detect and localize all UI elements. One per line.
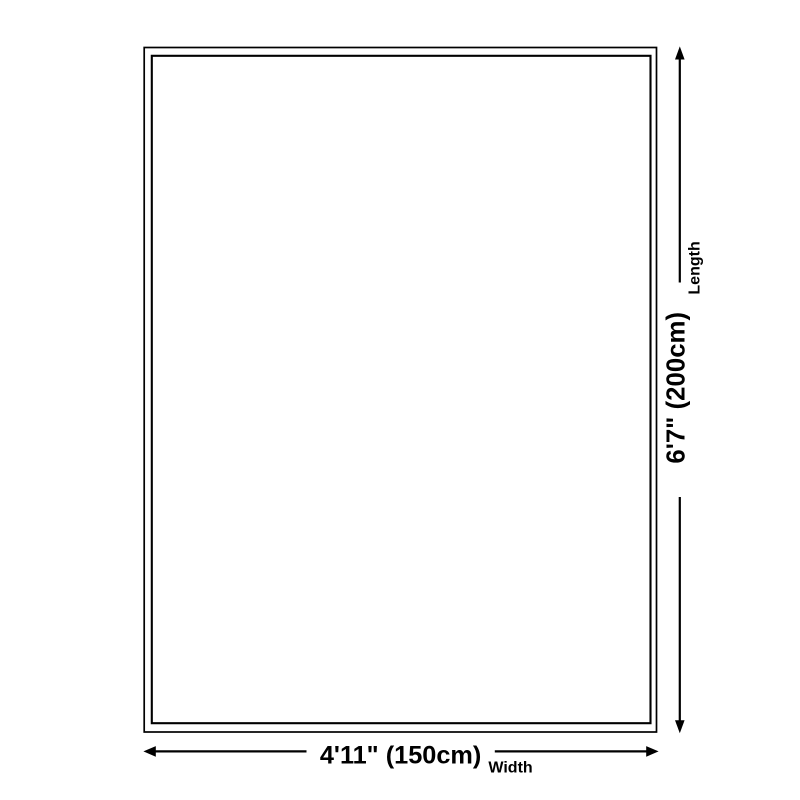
svg-text:6'7" (200cm): 6'7" (200cm) <box>662 312 690 464</box>
svg-text:Width: Width <box>488 760 532 777</box>
svg-text:4'11" (150cm): 4'11" (150cm) <box>320 741 481 769</box>
svg-text:Length: Length <box>686 241 703 294</box>
